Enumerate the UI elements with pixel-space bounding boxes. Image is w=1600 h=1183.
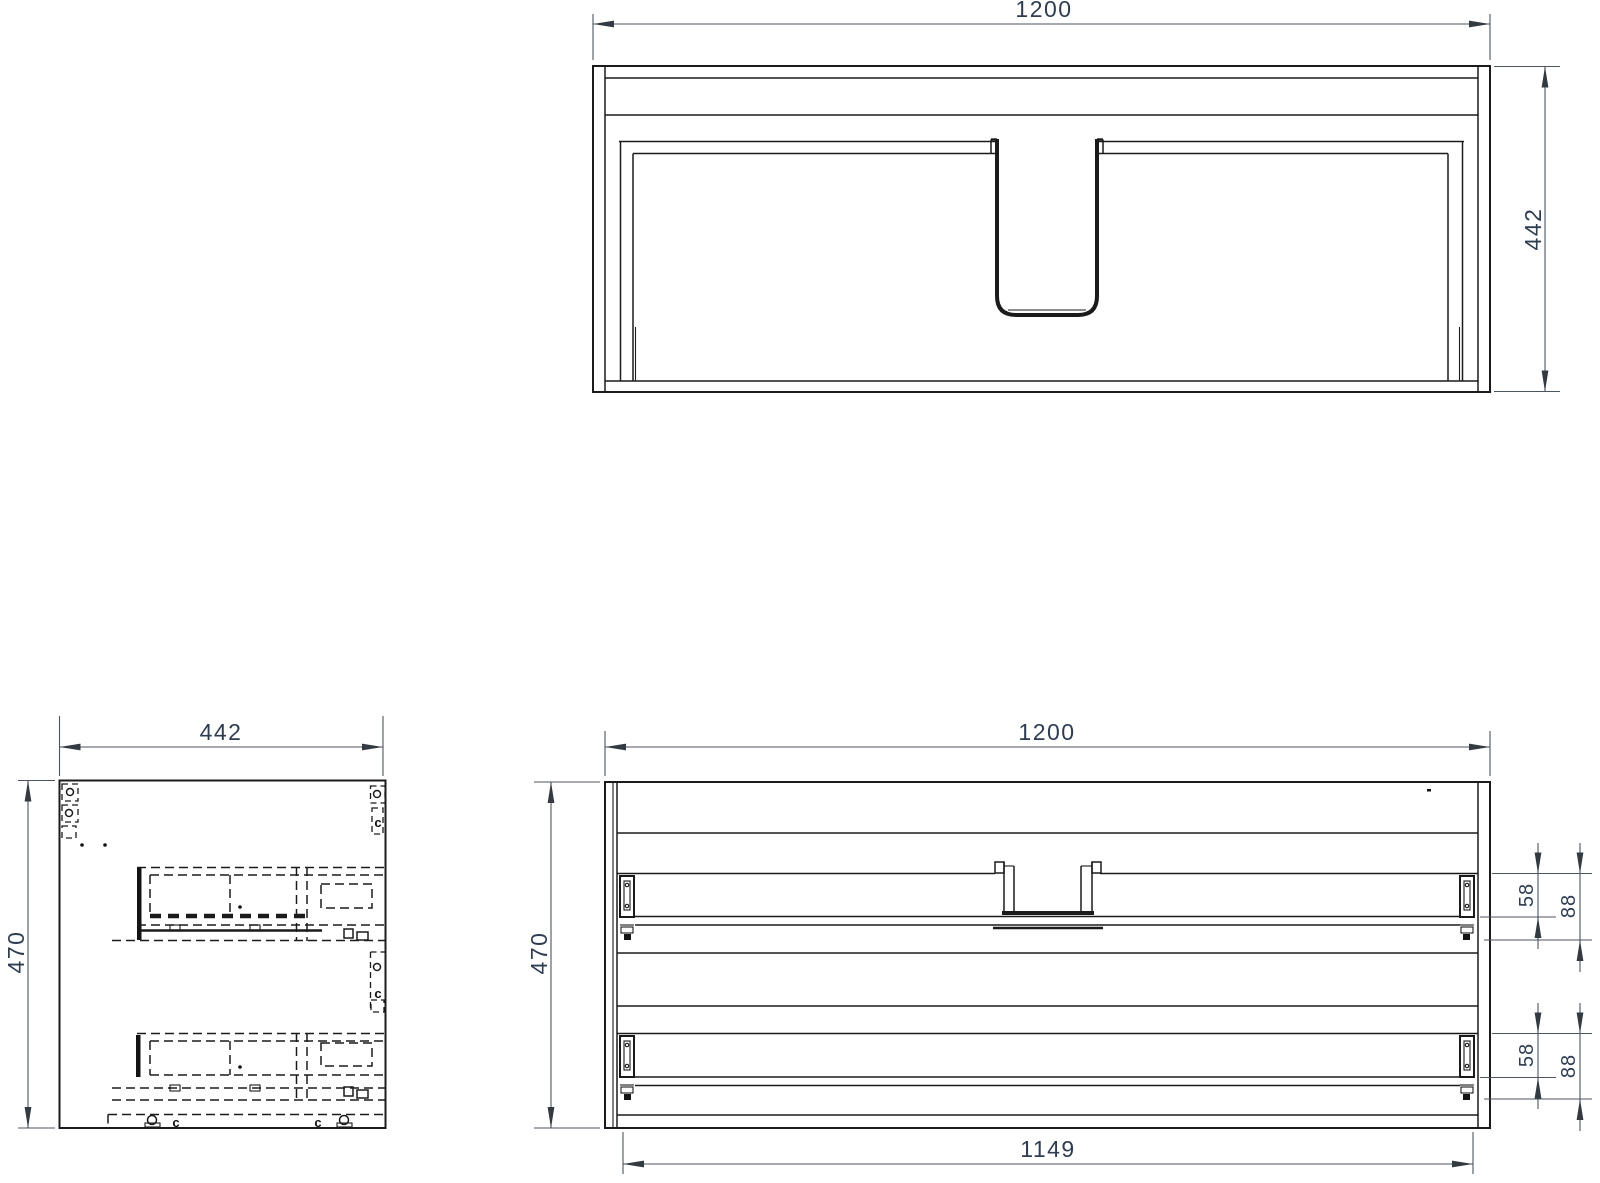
dim-top-depth: 442 xyxy=(1494,67,1560,392)
side-hidden-drawer-top xyxy=(112,867,385,941)
side-mount-bracket-top-right: c xyxy=(371,786,386,834)
side-marker-letter: c xyxy=(314,1115,321,1130)
side-mount-bracket-mid-right: c xyxy=(371,952,386,1012)
dim-side-depth: 442 xyxy=(60,716,384,776)
dim-side-height-label: 470 xyxy=(3,931,29,974)
front-drawer-bottom xyxy=(617,1034,1478,1101)
side-hidden-drawer-bottom xyxy=(112,1033,385,1100)
front-drawer-top xyxy=(617,862,1478,940)
side-mount-bracket-top-left xyxy=(62,784,78,838)
drawer-slide-bracket xyxy=(620,876,634,940)
dim-top-drawer-height-label: 88 xyxy=(1558,894,1580,918)
side-marker-letter: c xyxy=(172,1115,179,1130)
front-view: 1200 470 1149 58 xyxy=(526,719,1592,1174)
dim-front-width-label: 1200 xyxy=(1018,719,1075,745)
dim-front-height: 470 xyxy=(526,782,600,1128)
dim-top-width-label: 1200 xyxy=(1015,0,1072,22)
drawer-slide-bracket xyxy=(620,1036,634,1100)
side-view: c c xyxy=(3,716,386,1130)
drawer-slide-bracket xyxy=(1460,1036,1474,1100)
side-marker-letter: c xyxy=(374,986,381,1001)
dim-top-drawer-slide-label: 58 xyxy=(1516,883,1538,907)
top-view: 1200 442 xyxy=(593,0,1560,392)
dim-top-depth-label: 442 xyxy=(1520,208,1546,251)
dim-top-width: 1200 xyxy=(593,0,1490,60)
dim-side-height: 470 xyxy=(3,781,55,1129)
dim-bottom-drawer-height-label: 88 xyxy=(1558,1054,1580,1078)
side-dowel-mark xyxy=(103,843,107,847)
dim-front-height-label: 470 xyxy=(526,932,552,975)
dim-side-depth-label: 442 xyxy=(200,719,243,745)
dim-top-drawer-heights: 58 88 xyxy=(1480,843,1592,972)
dim-front-rail-width: 1149 xyxy=(623,1132,1473,1174)
top-view-plumbing-cutout xyxy=(991,139,1103,315)
side-dowel-mark xyxy=(80,843,84,847)
drawer-slide-bracket xyxy=(1460,876,1474,940)
front-plumbing-recess xyxy=(993,862,1103,928)
side-marker-letter: c xyxy=(374,815,381,830)
dim-front-width: 1200 xyxy=(605,719,1490,776)
cad-drawing-page: 1200 442 c xyxy=(0,0,1600,1183)
dim-bottom-drawer-heights: 58 88 xyxy=(1480,1003,1592,1131)
top-view-drawer-box xyxy=(619,142,1464,382)
vanity-cabinet-technical-drawing: 1200 442 c xyxy=(0,0,1600,1183)
dim-bottom-drawer-slide-label: 58 xyxy=(1516,1043,1538,1067)
dim-front-rail-width-label: 1149 xyxy=(1020,1136,1075,1162)
